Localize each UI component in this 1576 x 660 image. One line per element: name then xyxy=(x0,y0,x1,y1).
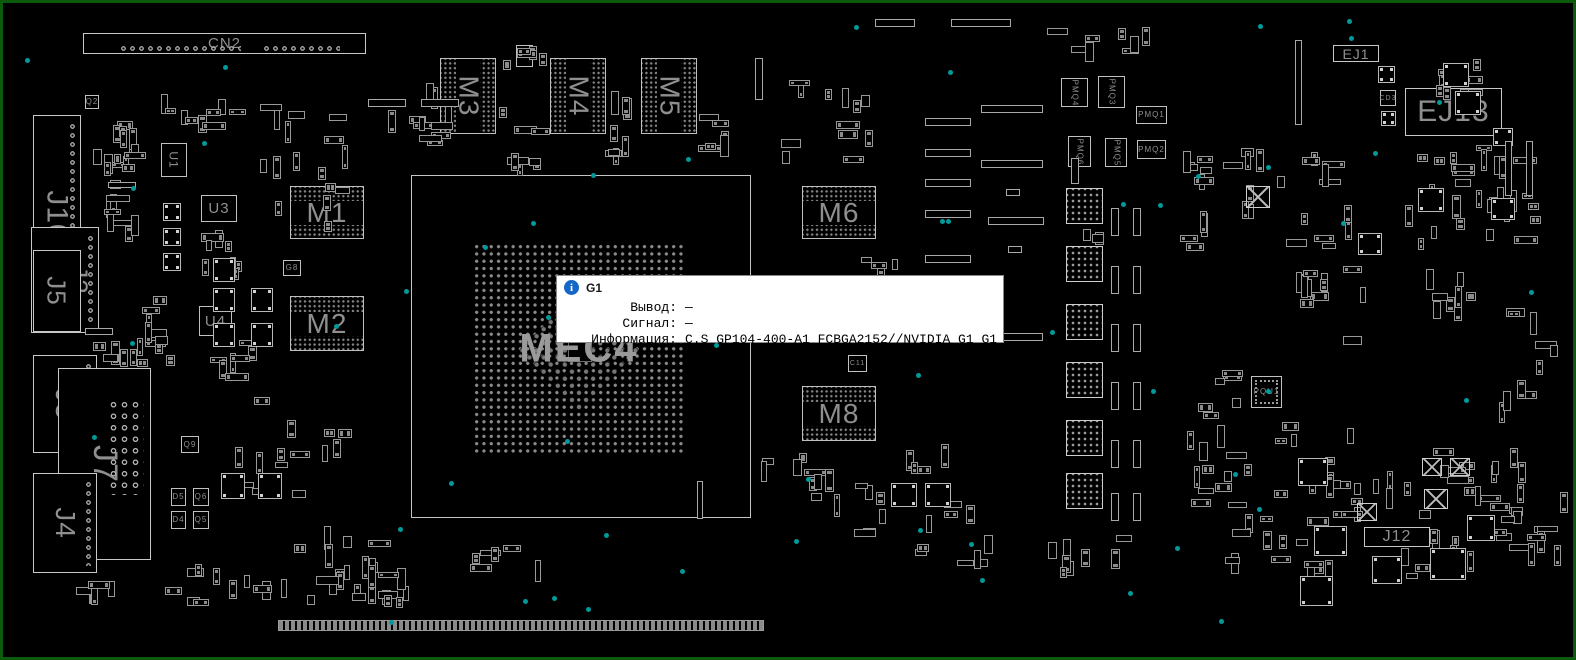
capacitor-bar xyxy=(925,179,971,187)
ic-component xyxy=(213,258,235,282)
passive-component xyxy=(185,117,198,124)
passive-component xyxy=(1275,438,1287,444)
passive-component xyxy=(343,536,352,548)
component-label-Q2: Q2 xyxy=(86,98,99,106)
test-point xyxy=(1349,36,1354,41)
passive-component xyxy=(793,459,802,477)
passive-component xyxy=(1186,243,1203,251)
passive-component xyxy=(316,576,339,584)
tooltip-row: Информация:C.S GP104-400-A1 FCBGA2152//N… xyxy=(565,332,999,348)
passive-component xyxy=(206,109,221,116)
diode-component xyxy=(1422,458,1442,476)
passive-component xyxy=(1286,239,1307,247)
power-stage-ic[interactable] xyxy=(1066,304,1103,340)
test-point xyxy=(25,58,30,63)
passive-component xyxy=(114,154,121,164)
diode-component xyxy=(1450,458,1470,476)
tooltip-row-label: Вывод: xyxy=(565,300,677,316)
passive-component xyxy=(273,156,282,179)
capacitor-bar xyxy=(1111,440,1119,468)
component-Q9[interactable]: Q9 xyxy=(181,436,199,453)
component-U3[interactable]: U3 xyxy=(201,195,237,222)
tooltip-header: i G1 xyxy=(564,280,602,295)
passive-component xyxy=(142,307,160,314)
component-label-PMQ2: PMQ2 xyxy=(1138,146,1165,154)
passive-component xyxy=(1191,499,1211,507)
passive-component xyxy=(974,550,981,569)
test-point xyxy=(918,528,923,533)
passive-component xyxy=(1277,176,1285,188)
passive-component xyxy=(1111,549,1120,569)
test-point xyxy=(1050,330,1055,335)
ic-component xyxy=(1300,576,1333,606)
passive-component xyxy=(622,97,629,115)
passive-component xyxy=(419,135,442,141)
passive-component xyxy=(368,540,390,547)
passive-component xyxy=(1405,205,1412,226)
passive-component xyxy=(1404,482,1411,496)
capacitor-bar xyxy=(1006,189,1020,196)
capacitor-bar xyxy=(925,255,971,263)
passive-component xyxy=(1048,542,1057,559)
passive-component xyxy=(324,136,344,144)
passive-component xyxy=(1466,292,1476,301)
component-M4[interactable]: M4 xyxy=(550,58,606,134)
passive-component xyxy=(1530,216,1541,224)
passive-component xyxy=(260,104,281,112)
passive-component xyxy=(1508,311,1520,317)
passive-component xyxy=(1452,195,1461,219)
passive-component xyxy=(244,575,250,587)
test-point xyxy=(980,578,985,583)
component-label-J5: J5 xyxy=(44,276,70,305)
passive-component xyxy=(984,535,993,554)
bottom-component-strip xyxy=(278,620,764,631)
ic-component xyxy=(258,473,282,499)
passive-component xyxy=(293,152,301,171)
component-label-D4: D4 xyxy=(172,516,184,524)
component-U1[interactable]: U1 xyxy=(161,143,187,177)
component-M8[interactable]: M8 xyxy=(802,386,876,441)
passive-component xyxy=(1386,488,1393,509)
test-point xyxy=(916,373,921,378)
passive-component xyxy=(335,187,350,194)
passive-component xyxy=(511,153,519,172)
test-point xyxy=(1233,472,1238,477)
passive-component xyxy=(1373,479,1379,494)
pin-column xyxy=(87,234,94,326)
passive-component xyxy=(1432,293,1449,301)
passive-component xyxy=(165,108,176,114)
passive-component xyxy=(1528,203,1539,210)
component-EJ1[interactable]: EJ1 xyxy=(1333,45,1379,62)
boardview-window: CN2J10J2J5J3J7J4U1U3U4M1M2M3M4M5M6M8EJ1E… xyxy=(0,0,1576,660)
passive-component xyxy=(1415,564,1429,573)
passive-component xyxy=(1473,59,1481,71)
passive-component xyxy=(290,451,310,459)
passive-component xyxy=(1560,492,1568,514)
passive-component xyxy=(892,259,898,270)
pin-row xyxy=(119,45,241,52)
passive-component xyxy=(1197,156,1213,162)
passive-component xyxy=(253,585,272,593)
passive-component xyxy=(720,135,729,157)
passive-component xyxy=(329,114,348,121)
passive-component xyxy=(836,121,860,129)
ic-component xyxy=(1491,198,1515,220)
passive-component xyxy=(781,139,801,148)
ic-component xyxy=(1298,458,1328,486)
component-PMQ1[interactable]: PMQ1 xyxy=(1136,106,1167,124)
passive-component xyxy=(384,595,392,608)
capacitor-bar xyxy=(988,217,1044,225)
passive-component xyxy=(1527,534,1546,541)
passive-component xyxy=(318,167,326,181)
passive-component xyxy=(235,447,243,468)
passive-component xyxy=(470,564,493,572)
passive-component xyxy=(287,420,296,438)
capacitor-bar xyxy=(368,99,406,107)
passive-component xyxy=(1517,484,1524,503)
passive-component xyxy=(213,568,220,585)
power-stage-ic[interactable] xyxy=(1066,362,1103,398)
ic-component xyxy=(1358,233,1382,255)
test-point xyxy=(92,435,97,440)
component-EJ13[interactable]: EJ13 xyxy=(1405,88,1502,136)
passive-component xyxy=(368,565,376,588)
component-label-G8: G8 xyxy=(286,264,299,272)
ic-component xyxy=(891,483,917,507)
test-point xyxy=(1128,591,1133,596)
capacitor-bar xyxy=(925,149,971,157)
passive-component xyxy=(1510,448,1517,468)
component-label-PMQ3: PMQ3 xyxy=(1108,79,1116,106)
passive-component xyxy=(166,355,175,366)
passive-component xyxy=(1475,486,1481,506)
pin-row xyxy=(262,45,340,52)
component-D5[interactable]: D5 xyxy=(171,488,186,506)
component-Q6[interactable]: Q6 xyxy=(193,488,209,506)
component-Q2[interactable]: Q2 xyxy=(85,95,99,109)
component-label-D5: D5 xyxy=(172,493,184,501)
passive-component xyxy=(145,322,152,343)
passive-component xyxy=(378,572,399,578)
passive-component xyxy=(941,444,950,468)
passive-component xyxy=(1452,536,1458,546)
test-point xyxy=(686,157,691,162)
ic-component xyxy=(1314,526,1347,556)
passive-component xyxy=(854,529,876,537)
passive-component xyxy=(1187,431,1194,449)
passive-component xyxy=(294,544,306,552)
component-Q5[interactable]: Q5 xyxy=(193,511,209,529)
passive-component xyxy=(1302,157,1321,165)
tooltip-row-label: Информация: xyxy=(565,332,677,348)
capacitor-bar xyxy=(1071,158,1079,184)
passive-component xyxy=(322,445,328,462)
test-point xyxy=(404,289,409,294)
component-G8[interactable]: G8 xyxy=(283,260,301,276)
component-D4[interactable]: D4 xyxy=(171,511,186,529)
passive-component xyxy=(1291,434,1297,447)
passive-component xyxy=(1085,42,1094,61)
capacitor-bar xyxy=(1111,493,1119,521)
passive-component xyxy=(288,111,306,119)
passive-component xyxy=(1223,162,1243,169)
component-PMQ2[interactable]: PMQ2 xyxy=(1137,140,1166,159)
passive-component xyxy=(1314,235,1334,242)
passive-component xyxy=(1130,36,1139,53)
passive-component xyxy=(825,469,834,492)
passive-component xyxy=(876,492,884,505)
passive-component xyxy=(531,128,550,136)
tooltip-row-value: — xyxy=(685,300,693,316)
component-label-M4: M4 xyxy=(564,76,592,117)
diode-component xyxy=(1357,503,1377,521)
component-J12[interactable]: J12 xyxy=(1364,527,1430,547)
passive-component xyxy=(1537,526,1558,532)
passive-component xyxy=(1142,27,1150,46)
component-label-Q9: Q9 xyxy=(184,441,197,449)
passive-component xyxy=(1443,87,1451,100)
component-PMQ5[interactable]: PMQ5 xyxy=(1105,138,1127,167)
test-point xyxy=(946,219,951,224)
passive-component xyxy=(957,560,974,566)
test-point xyxy=(1175,546,1180,551)
passive-component xyxy=(1200,211,1207,233)
passive-component xyxy=(1274,490,1288,497)
passive-component xyxy=(1514,236,1538,245)
passive-component xyxy=(944,511,959,518)
passive-component xyxy=(917,466,932,474)
passive-component xyxy=(388,110,395,133)
passive-component xyxy=(503,545,521,552)
passive-component xyxy=(325,544,333,568)
capacitor-bar xyxy=(1133,208,1141,236)
passive-component xyxy=(1224,471,1232,482)
passive-component xyxy=(1228,502,1247,508)
test-point xyxy=(1196,174,1201,179)
test-point xyxy=(604,533,609,538)
passive-component xyxy=(324,429,335,437)
component-label-Q6: Q6 xyxy=(195,493,208,501)
power-stage-ic[interactable] xyxy=(1066,473,1103,509)
component-M6[interactable]: M6 xyxy=(802,186,876,239)
passive-component xyxy=(229,580,236,599)
passive-component xyxy=(529,158,540,167)
passive-component xyxy=(705,143,716,150)
passive-component xyxy=(1493,529,1507,536)
passive-component xyxy=(1343,266,1362,273)
passive-component xyxy=(761,461,767,481)
component-label-M8: M8 xyxy=(819,400,860,428)
capacitor-bar xyxy=(1295,40,1302,125)
passive-component xyxy=(137,359,148,368)
passive-component xyxy=(1202,465,1215,473)
passive-component xyxy=(419,117,426,131)
test-point xyxy=(948,70,953,75)
passive-component xyxy=(274,110,280,130)
passive-component xyxy=(333,439,341,458)
passive-component xyxy=(1550,345,1558,357)
component-label-EJ1: EJ1 xyxy=(1342,47,1369,61)
passive-component xyxy=(1503,391,1511,411)
component-M5[interactable]: M5 xyxy=(641,58,697,134)
passive-component xyxy=(1063,539,1071,556)
passive-component xyxy=(260,159,267,174)
diode-component xyxy=(1246,186,1270,208)
passive-component xyxy=(1245,151,1252,170)
passive-component xyxy=(431,122,453,130)
passive-component xyxy=(202,122,226,130)
ic-component xyxy=(1378,66,1395,83)
capacitor-bar xyxy=(925,118,971,126)
ic-component xyxy=(163,253,181,271)
component-J5[interactable]: J5 xyxy=(33,250,81,332)
passive-component xyxy=(1447,476,1469,484)
component-label-J4: J4 xyxy=(51,507,79,539)
capacitor-bar xyxy=(1133,493,1141,521)
test-point xyxy=(334,324,339,329)
component-label-PMQ1: PMQ1 xyxy=(1138,111,1165,119)
passive-component xyxy=(202,259,209,276)
passive-component xyxy=(1433,448,1454,456)
capacitor-bar xyxy=(755,58,763,100)
passive-component xyxy=(1492,461,1500,475)
passive-component xyxy=(712,120,729,127)
passive-component xyxy=(1083,229,1091,241)
passive-component xyxy=(225,241,232,251)
passive-component xyxy=(1232,398,1241,409)
test-point xyxy=(202,141,207,146)
component-label-CD3: CD3 xyxy=(1380,95,1397,102)
capacitor-bar xyxy=(697,481,703,519)
passive-component xyxy=(1456,218,1464,230)
tooltip-row-label: Сигнал: xyxy=(565,316,677,332)
passive-component xyxy=(926,515,933,533)
passive-component xyxy=(1476,190,1482,208)
component-J4[interactable]: J4 xyxy=(33,473,97,573)
ic-component xyxy=(1430,548,1466,580)
passive-component xyxy=(535,560,542,582)
passive-component xyxy=(825,89,833,100)
ic-component xyxy=(1381,111,1396,126)
test-point xyxy=(546,315,551,320)
passive-component xyxy=(104,209,121,216)
test-point xyxy=(1219,619,1224,624)
passive-component xyxy=(1455,179,1471,187)
capacitor-bar xyxy=(981,105,1043,113)
component-CD3[interactable]: CD3 xyxy=(1380,90,1396,106)
component-M2[interactable]: M2 xyxy=(290,296,364,351)
passive-component xyxy=(853,100,861,113)
diode-component xyxy=(1424,489,1448,509)
passive-component xyxy=(879,509,886,524)
passive-component xyxy=(124,152,146,158)
passive-component xyxy=(1517,380,1526,399)
capacitor-bar xyxy=(1111,324,1119,352)
passive-component xyxy=(917,544,930,553)
ic-component xyxy=(1443,63,1469,87)
capacitor-bar xyxy=(1133,440,1141,468)
passive-component xyxy=(1320,279,1328,291)
capacitor-bar xyxy=(1133,266,1141,294)
passive-component xyxy=(206,240,212,251)
passive-component xyxy=(1501,516,1515,523)
component-PMQ4[interactable]: PMQ4 xyxy=(1061,78,1088,107)
power-stage-ic[interactable] xyxy=(1066,420,1103,456)
component-label-Q5: Q5 xyxy=(195,516,208,524)
ic-component xyxy=(1467,515,1495,541)
passive-component xyxy=(1200,167,1213,174)
passive-component xyxy=(782,151,789,165)
component-C11[interactable]: C11 xyxy=(848,355,867,372)
test-point xyxy=(586,607,591,612)
component-PMQ3[interactable]: PMQ3 xyxy=(1098,76,1125,108)
info-icon: i xyxy=(564,280,579,295)
capacitor-bar xyxy=(981,160,1043,168)
component-label-PMQ4: PMQ4 xyxy=(1071,79,1079,106)
passive-component xyxy=(1431,226,1437,239)
test-point xyxy=(680,569,685,574)
ic-component xyxy=(251,323,273,347)
test-point xyxy=(969,542,974,547)
capacitor-bar xyxy=(1008,246,1022,253)
ic-component xyxy=(251,288,273,312)
passive-component xyxy=(1301,275,1308,298)
power-stage-ic[interactable] xyxy=(1066,188,1103,224)
ic-component xyxy=(221,473,245,499)
power-stage-ic[interactable] xyxy=(1066,246,1103,282)
passive-component xyxy=(1215,378,1226,385)
passive-component xyxy=(843,156,865,163)
passive-component xyxy=(1528,543,1535,566)
passive-component xyxy=(275,201,282,217)
capacitor-bar xyxy=(1526,141,1533,196)
passive-component xyxy=(838,130,858,138)
passive-component xyxy=(285,121,291,143)
capacitor-bar xyxy=(1111,208,1119,236)
passive-component xyxy=(1085,35,1100,42)
component-label-U3: U3 xyxy=(208,201,229,216)
passive-component xyxy=(104,162,111,176)
component-CN2[interactable]: CN2 xyxy=(83,33,366,54)
passive-component xyxy=(1244,464,1253,476)
passive-component xyxy=(499,107,507,118)
passive-component xyxy=(1344,205,1352,223)
passive-component xyxy=(1271,556,1290,563)
test-point xyxy=(1464,398,1469,403)
passive-component xyxy=(814,474,821,490)
passive-component xyxy=(352,593,365,601)
passive-component xyxy=(292,490,306,497)
test-point xyxy=(940,219,945,224)
passive-component xyxy=(193,599,208,606)
passive-component xyxy=(1417,154,1428,162)
test-point xyxy=(1257,507,1262,512)
test-point xyxy=(1158,203,1163,208)
passive-component xyxy=(1307,517,1329,525)
component-label-PMQ5: PMQ5 xyxy=(1112,139,1120,166)
tooltip-component-ref: G1 xyxy=(586,281,602,295)
passive-component xyxy=(1481,149,1487,171)
passive-component xyxy=(871,262,888,269)
passive-component xyxy=(1360,287,1366,303)
passive-component xyxy=(1116,535,1132,542)
capacitor-bar xyxy=(925,210,971,218)
test-point xyxy=(131,186,136,191)
passive-component xyxy=(1303,270,1318,277)
